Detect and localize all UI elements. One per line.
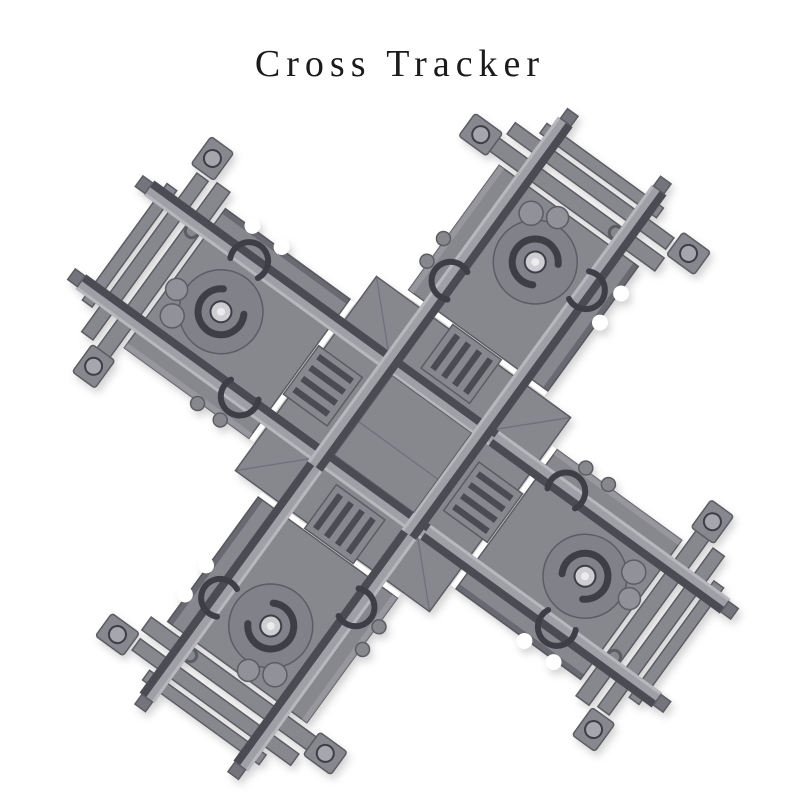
cross-track-piece (0, 0, 800, 800)
product-render-svg (0, 0, 800, 800)
page: Cross Tracker (0, 0, 800, 800)
product-image (0, 0, 800, 800)
